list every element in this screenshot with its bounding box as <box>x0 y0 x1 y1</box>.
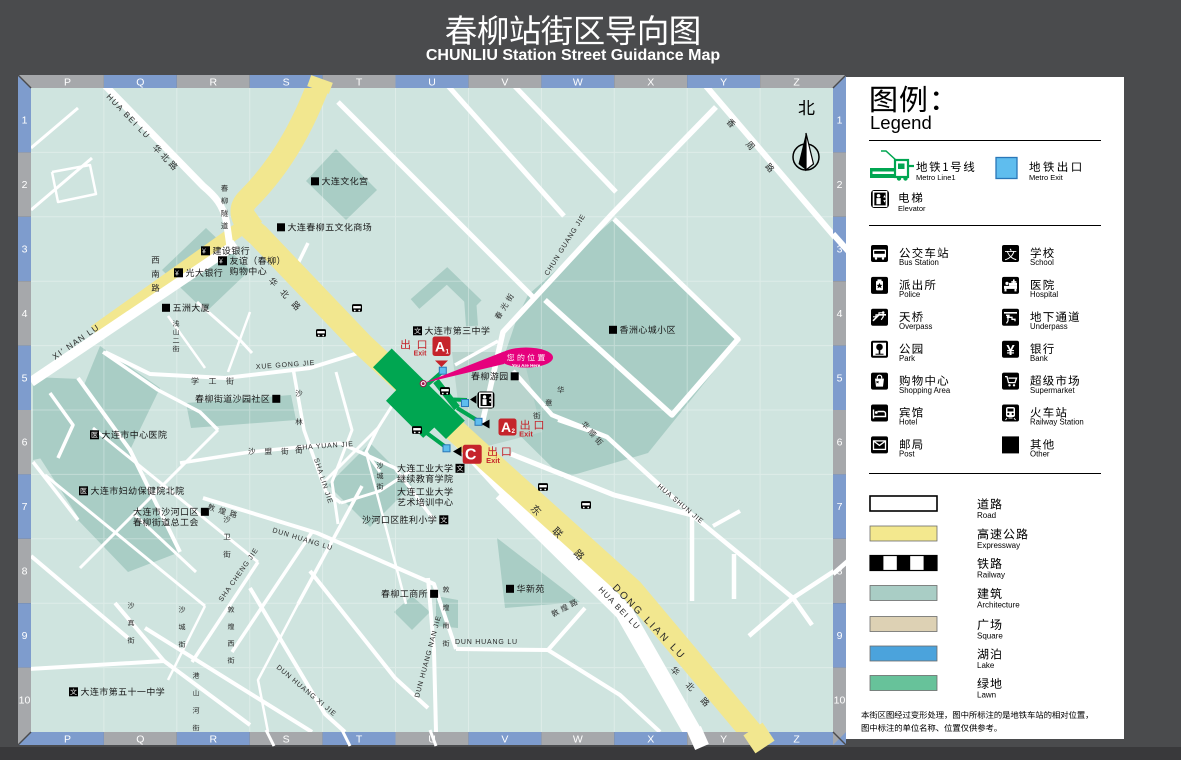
svg-text:S: S <box>283 734 290 746</box>
svg-text:You Are Here: You Are Here <box>512 363 541 368</box>
svg-text:2: 2 <box>22 179 28 191</box>
svg-text:Square: Square <box>977 632 1003 641</box>
svg-text:5: 5 <box>837 372 843 384</box>
svg-text:1: 1 <box>837 115 843 127</box>
svg-text:Supermarket: Supermarket <box>1030 386 1075 395</box>
svg-text:9: 9 <box>837 630 843 642</box>
svg-text:V: V <box>501 77 508 89</box>
svg-text:T: T <box>356 734 363 746</box>
svg-text:Road: Road <box>977 511 996 520</box>
svg-text:4: 4 <box>22 308 28 320</box>
svg-text:Exit: Exit <box>414 351 428 358</box>
svg-text:Post: Post <box>899 450 915 459</box>
svg-text:School: School <box>1030 258 1054 267</box>
svg-text:X: X <box>647 77 654 89</box>
svg-text:6: 6 <box>837 437 843 449</box>
svg-text:Z: Z <box>793 734 800 746</box>
svg-text:Underpass: Underpass <box>1030 322 1068 331</box>
svg-text:R: R <box>209 77 217 89</box>
svg-text:Park: Park <box>899 354 915 363</box>
svg-text:Metro Line1: Metro Line1 <box>916 173 956 182</box>
svg-text:P: P <box>64 734 71 746</box>
svg-text:DUN HUANG LU: DUN HUANG LU <box>455 639 518 646</box>
svg-text:4: 4 <box>837 308 843 320</box>
svg-text:1: 1 <box>446 348 450 355</box>
svg-text:5: 5 <box>22 372 28 384</box>
svg-text:S: S <box>283 77 290 89</box>
svg-text:6: 6 <box>22 437 28 449</box>
svg-text:1: 1 <box>22 115 28 127</box>
svg-text:Exit: Exit <box>519 430 533 439</box>
svg-text:Bus Station: Bus Station <box>899 258 939 267</box>
svg-text:X: X <box>647 734 654 746</box>
svg-text:8: 8 <box>22 566 28 578</box>
svg-text:7: 7 <box>22 501 28 513</box>
svg-text:Hotel: Hotel <box>899 418 917 427</box>
svg-text:R: R <box>209 734 217 746</box>
svg-text:Hospital: Hospital <box>1030 290 1058 299</box>
svg-text:Z: Z <box>793 77 800 89</box>
svg-text:Overpass: Overpass <box>899 322 932 331</box>
svg-text:Y: Y <box>720 77 727 89</box>
svg-text:Railway Station: Railway Station <box>1030 418 1084 427</box>
svg-text:Lawn: Lawn <box>977 691 996 700</box>
svg-text:Elevator: Elevator <box>898 204 926 213</box>
svg-text:A: A <box>501 419 511 435</box>
svg-text:U: U <box>428 77 436 89</box>
svg-text:2: 2 <box>837 179 843 191</box>
svg-text:Architecture: Architecture <box>977 601 1020 610</box>
svg-text:A: A <box>435 339 445 355</box>
svg-text:Q: Q <box>136 77 144 89</box>
svg-text:T: T <box>356 77 363 89</box>
svg-text:Police: Police <box>899 290 920 299</box>
svg-text:CHUNLIU Station Street Guidanc: CHUNLIU Station Street Guidance Map <box>426 47 720 64</box>
svg-text:C: C <box>465 447 477 464</box>
svg-text:Y: Y <box>720 734 727 746</box>
svg-text:P: P <box>64 77 71 89</box>
svg-text:Metro Exit: Metro Exit <box>1029 173 1064 182</box>
svg-text:Bank: Bank <box>1030 354 1048 363</box>
svg-text:10: 10 <box>834 694 846 706</box>
svg-text:¥: ¥ <box>1006 342 1015 359</box>
svg-text:Other: Other <box>1030 450 1050 459</box>
svg-text:W: W <box>573 734 583 746</box>
svg-text:V: V <box>501 734 508 746</box>
svg-text:Legend: Legend <box>870 112 932 133</box>
svg-text:W: W <box>573 77 583 89</box>
svg-text:10: 10 <box>19 694 31 706</box>
svg-text:Railway: Railway <box>977 571 1005 580</box>
svg-text:3: 3 <box>22 244 28 256</box>
svg-text:Shopping Area: Shopping Area <box>899 386 951 395</box>
svg-text:2: 2 <box>512 428 516 435</box>
svg-text:7: 7 <box>837 501 843 513</box>
svg-text:Q: Q <box>136 734 144 746</box>
svg-text:9: 9 <box>22 630 28 642</box>
svg-text:Exit: Exit <box>486 456 500 465</box>
svg-text:Lake: Lake <box>977 661 995 670</box>
svg-text:Expressway: Expressway <box>977 541 1020 550</box>
